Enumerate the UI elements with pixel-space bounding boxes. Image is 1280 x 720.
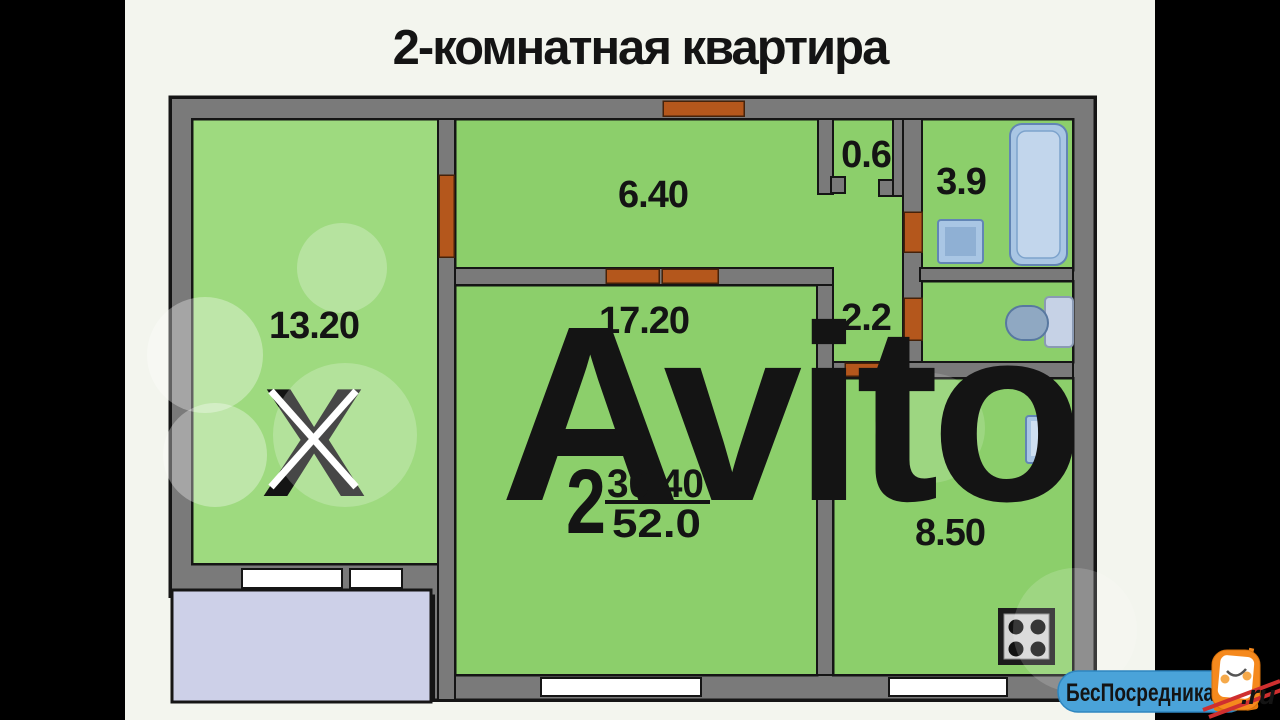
mascot-cheek <box>1221 675 1230 684</box>
watermark-circle <box>297 223 387 313</box>
door-living1 <box>439 175 454 257</box>
window-living1-a <box>242 569 342 588</box>
watermark-circle <box>147 297 263 413</box>
bathtub-inner <box>1017 131 1060 258</box>
label-hallway-area: 6.40 <box>618 174 688 216</box>
door-bathroom <box>904 212 922 252</box>
wall-closet-right-jamb <box>879 180 893 196</box>
window-living1-b <box>350 569 402 588</box>
balcony <box>172 590 431 702</box>
logo-domain-suffix: .ru <box>1241 680 1276 710</box>
summary-rooms-count: 2 <box>566 451 606 553</box>
label-living1-area: 13.20 <box>269 305 359 347</box>
screenshot-canvas: 2-комнатная квартира <box>0 0 1280 720</box>
label-wc-area: 2.2 <box>841 297 891 339</box>
label-kitchen-area: 8.50 <box>915 512 985 554</box>
wall-closet-left-jamb <box>831 177 845 193</box>
watermark-circle <box>163 403 267 507</box>
label-living2-area: 17.20 <box>599 300 689 342</box>
summary-living-area: 30.40 <box>607 462 704 506</box>
door-entrance <box>663 101 744 116</box>
letterbox-right <box>1155 0 1280 720</box>
summary-total-area: 52.0 <box>612 502 701 546</box>
logo-site-name: БесПосредника <box>1066 679 1215 707</box>
area-summary: 2 30.40 52.0 <box>566 451 710 553</box>
bath-sink-basin <box>945 227 976 256</box>
window-living2 <box>541 678 701 696</box>
label-bathroom-area: 3.9 <box>936 161 986 203</box>
floorplan: X Avito 13.20 6.40 17.20 0.6 3.9 2.2 8.5… <box>0 0 1280 720</box>
letterbox-left <box>0 0 125 720</box>
label-closet-area: 0.6 <box>841 134 891 176</box>
window-kitchen <box>889 678 1007 696</box>
watermark-circle <box>273 363 417 507</box>
